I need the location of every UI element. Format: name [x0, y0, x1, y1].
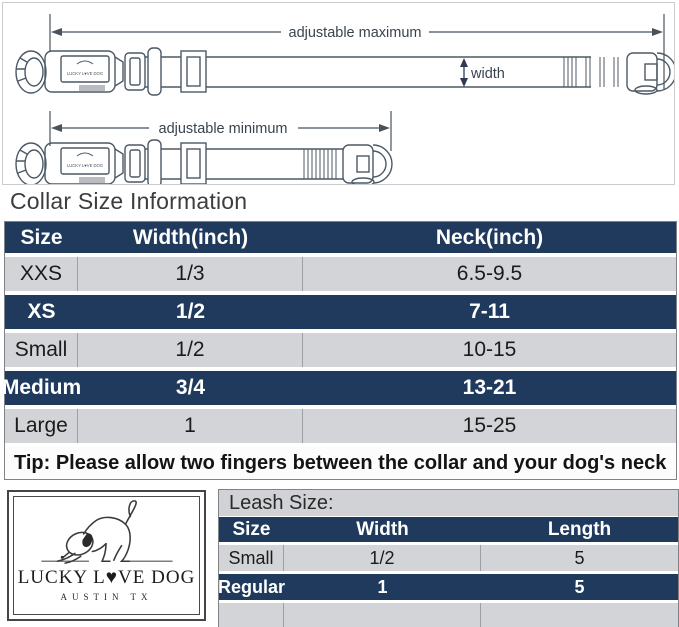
cell-neck: 7-11	[303, 295, 676, 329]
cell-size: Regular	[219, 574, 284, 600]
cell-length: 5	[481, 574, 678, 600]
cell-size: Small	[219, 545, 284, 571]
cell-size: XXS	[5, 257, 78, 291]
collar-header-width: Width(inch)	[78, 222, 303, 253]
cell-width: 1/2	[78, 295, 303, 329]
cell-size: Medium	[5, 371, 78, 405]
collar-size-heading: Collar Size Information	[10, 188, 247, 215]
brand-logo-box: LUCKY L♥VE DOG AUSTIN TX	[7, 490, 206, 621]
adjustable-maximum-label: adjustable maximum	[289, 25, 422, 41]
cell-length: 5	[481, 545, 678, 571]
table-row-small: Small 1/2 10-15	[5, 333, 676, 367]
brand-location-text: AUSTIN TX	[14, 592, 199, 602]
cell-size: XS	[5, 295, 78, 329]
leash-table-header-row: Size Width Length	[219, 517, 678, 542]
leash-row-empty	[219, 603, 678, 627]
collar-tag-text-max: LUCKY L♥VE DOG	[67, 71, 103, 76]
cell-width: 3/4	[78, 371, 303, 405]
dog-illustration	[22, 497, 192, 569]
collar-table-header-row: Size Width(inch) Neck(inch)	[5, 222, 676, 253]
cell-neck: 15-25	[303, 409, 676, 443]
cell-neck: 13-21	[303, 371, 676, 405]
cell-size: Large	[5, 409, 78, 443]
leash-header-size: Size	[219, 517, 284, 542]
cell-width: 1/2	[284, 545, 481, 571]
collar-size-table: Size Width(inch) Neck(inch) XXS 1/3 6.5-…	[4, 221, 677, 480]
width-measure	[460, 58, 468, 87]
table-row-large: Large 1 15-25	[5, 409, 676, 443]
cell-width: 1	[78, 409, 303, 443]
table-row-medium: Medium 3/4 13-21	[5, 371, 676, 405]
leash-row-regular: Regular 1 5	[219, 574, 678, 600]
leash-header-width: Width	[284, 517, 481, 542]
brand-name-text: LUCKY L♥VE DOG	[14, 567, 199, 589]
cell-neck: 10-15	[303, 333, 676, 367]
collar-diagram-section: adjustable maximum width LUCKY L♥VE DOG	[2, 2, 675, 185]
collar-diagram: adjustable maximum width LUCKY L♥VE DOG	[3, 3, 674, 184]
cell-neck: 6.5-9.5	[303, 257, 676, 291]
leash-row-small: Small 1/2 5	[219, 545, 678, 571]
collar-header-size: Size	[5, 222, 78, 253]
collar-size-chart-image: adjustable maximum width LUCKY L♥VE DOG	[0, 0, 679, 627]
leash-size-title: Leash Size:	[219, 490, 678, 516]
table-row-xs: XS 1/2 7-11	[5, 295, 676, 329]
cell-width: 1/2	[78, 333, 303, 367]
brand-logo-inner-frame: LUCKY L♥VE DOG AUSTIN TX	[13, 496, 200, 615]
adjustable-minimum-label: adjustable minimum	[159, 121, 288, 137]
fit-tip-text: Tip: Please allow two fingers between th…	[5, 447, 676, 479]
leash-header-length: Length	[481, 517, 678, 542]
table-row-xxs: XXS 1/3 6.5-9.5	[5, 257, 676, 291]
cell-width: 1	[284, 574, 481, 600]
collar-tag-text-min: LUCKY L♥VE DOG	[67, 163, 103, 168]
leash-size-table: Leash Size: Size Width Length Small 1/2 …	[218, 489, 679, 627]
width-label: width	[470, 66, 505, 82]
collar-min-drawing	[16, 140, 392, 184]
cell-width: 1/3	[78, 257, 303, 291]
collar-max-drawing	[16, 48, 674, 95]
cell-size: Small	[5, 333, 78, 367]
collar-header-neck: Neck(inch)	[303, 222, 676, 253]
